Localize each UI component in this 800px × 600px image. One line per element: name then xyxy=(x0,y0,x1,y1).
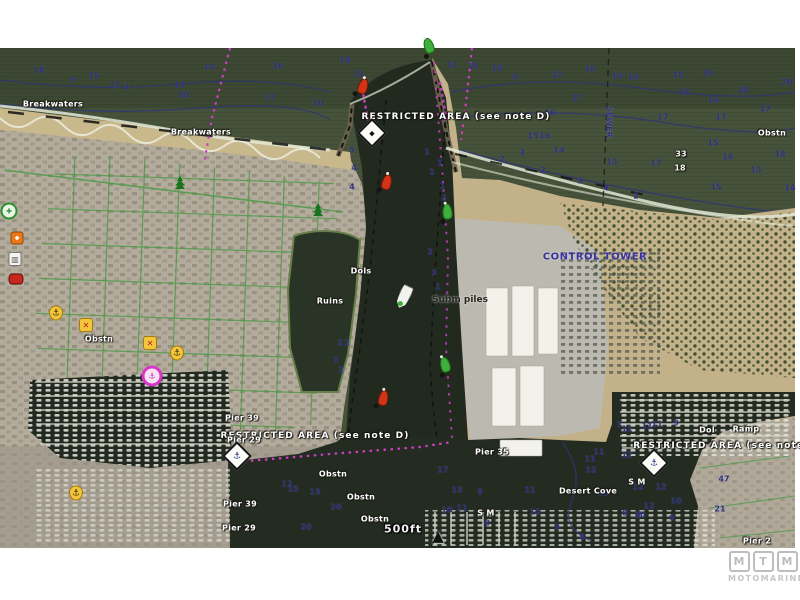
motomarine-watermark: M T M MOTOMARINE xyxy=(728,551,798,583)
satellite-chart-base xyxy=(0,48,795,548)
watermark-letter: T xyxy=(753,551,774,572)
watermark-letter: M xyxy=(777,551,798,572)
watermark-name: MOTOMARINE xyxy=(728,574,798,583)
map-canvas[interactable] xyxy=(0,48,795,548)
chartplotter-screenshot: 1891511111101416111018111116169171016101… xyxy=(0,0,800,600)
watermark-letter: M xyxy=(729,551,750,572)
